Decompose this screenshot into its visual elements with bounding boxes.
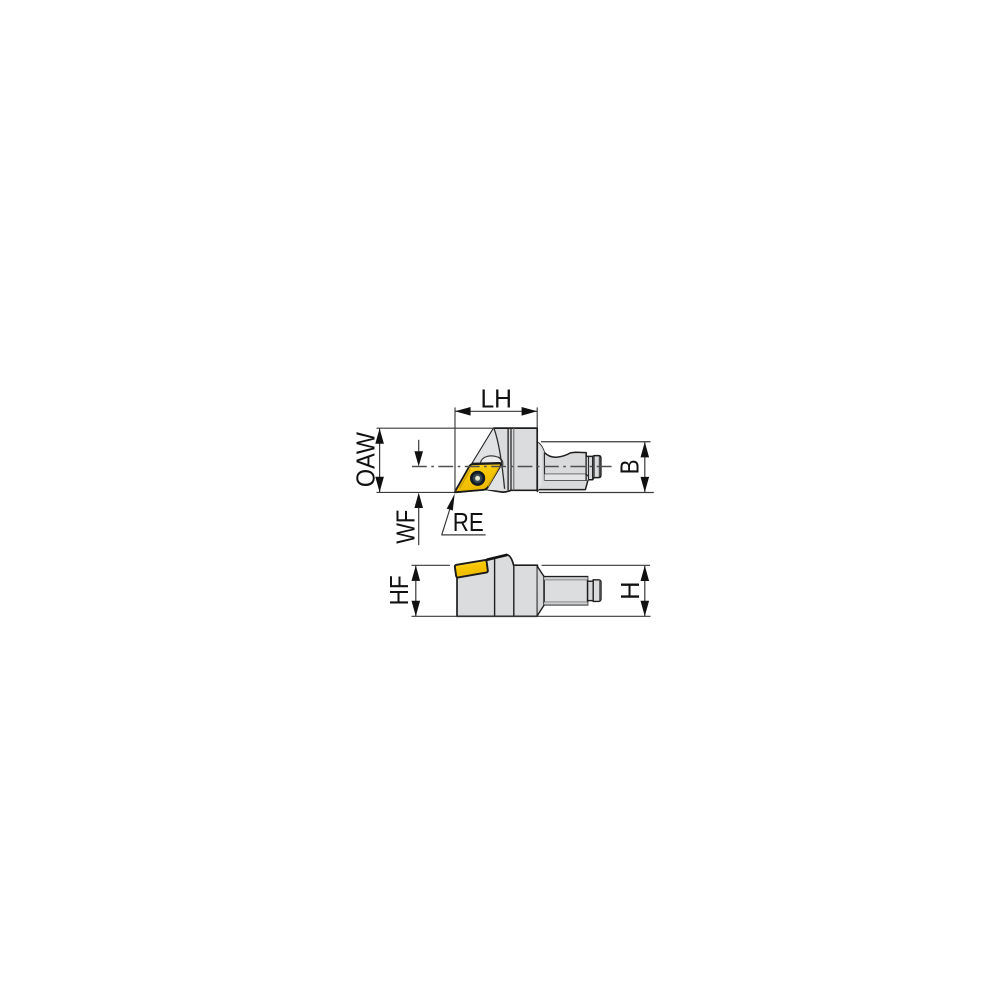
svg-text:LH: LH [480, 383, 512, 413]
svg-text:OAW: OAW [350, 432, 380, 487]
svg-text:H: H [615, 581, 645, 600]
svg-text:RE: RE [453, 507, 484, 537]
svg-text:WF: WF [391, 510, 421, 544]
svg-text:HF: HF [384, 575, 414, 605]
svg-text:B: B [615, 459, 645, 474]
